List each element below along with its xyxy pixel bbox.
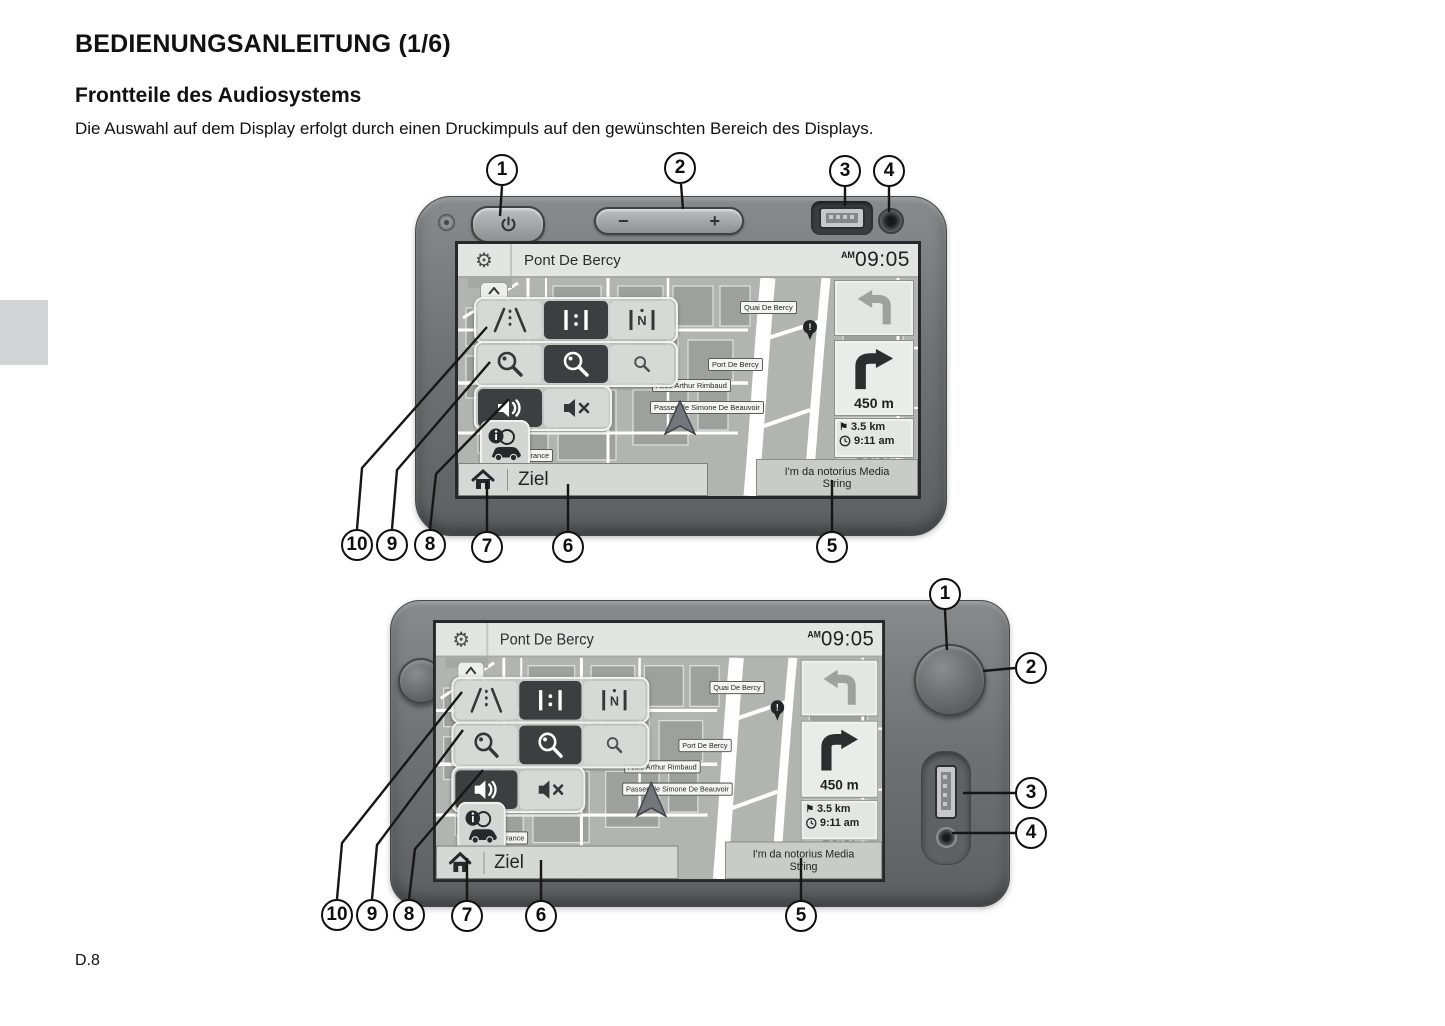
d1-callout-8: 8: [414, 529, 446, 561]
remaining-distance-row: ⚑ 3.5 km: [835, 419, 913, 435]
destination-button[interactable]: Ziel: [518, 469, 549, 491]
usb-port: [811, 201, 873, 235]
mute-button[interactable]: [544, 389, 608, 427]
settings-button[interactable]: ⚙: [436, 623, 488, 656]
curved-arrow-icon: [852, 288, 896, 328]
flag-icon: ⚑: [839, 422, 848, 433]
d2-callout-9: 9: [356, 899, 388, 931]
trip-info-box[interactable]: ⚑ 3.5 km 9:11 am: [834, 418, 914, 458]
remaining-distance-row: ⚑ 3.5 km: [802, 801, 878, 817]
north-letter: N: [610, 693, 619, 708]
current-street: Pont De Bercy: [512, 252, 841, 269]
turn-distance: 450 m: [835, 395, 913, 411]
view-2d-button[interactable]: [544, 301, 608, 339]
view-3d-button[interactable]: [455, 681, 517, 720]
flat-map-icon: [557, 307, 595, 333]
d1-callout-6: 6: [552, 531, 584, 563]
volume-rocker[interactable]: − +: [594, 207, 744, 235]
view-3d-button[interactable]: [478, 301, 542, 339]
destination-button[interactable]: Ziel: [494, 851, 524, 873]
gear-icon: ⚙: [475, 248, 493, 273]
power-icon: [500, 216, 517, 233]
street-label: Port De Bercy: [708, 358, 763, 371]
right-knob[interactable]: [914, 644, 986, 716]
north-up-button[interactable]: N: [583, 681, 645, 720]
north-up-button[interactable]: N: [610, 301, 674, 339]
d2-callout-3: 3: [1015, 777, 1047, 809]
clock-icon: [839, 435, 851, 447]
turn-distance: 450 m: [802, 776, 878, 792]
flag-icon: ⚑: [805, 803, 814, 814]
view-2d-button[interactable]: [519, 681, 581, 720]
mute-button[interactable]: [519, 770, 581, 809]
section-title: Frontteile des Audiosystems: [75, 84, 361, 108]
street-label: Port De Bercy: [678, 739, 731, 752]
device1-bezel: − +: [415, 196, 947, 536]
screen-header: ⚙ Pont De Bercy AM 09:05: [436, 623, 882, 658]
next-maneuver-box[interactable]: [834, 280, 914, 336]
alert-pin-icon[interactable]: !: [803, 320, 817, 334]
device2-screen-slot: ⚙ Pont De Bercy AM 09:05: [433, 620, 885, 882]
magnifier-icon: [536, 730, 565, 760]
collapse-tools-button[interactable]: [457, 662, 484, 678]
position-arrow-icon: [634, 782, 669, 819]
destination-bar[interactable]: Ziel: [436, 846, 679, 880]
muted-speaker-icon: [536, 777, 565, 801]
clock-icon: [805, 817, 817, 829]
d2-callout-4: 4: [1015, 817, 1047, 849]
turn-box[interactable]: 450 m: [801, 721, 879, 798]
settings-button[interactable]: ⚙: [458, 244, 512, 276]
d2-callout-2: 2: [1015, 652, 1047, 684]
d2-callout-8: 8: [393, 899, 425, 931]
street-label: Quai De Bercy: [709, 681, 764, 694]
flat-map-icon: [532, 687, 569, 713]
usb-icon: [818, 205, 866, 231]
north-letter: N: [637, 313, 646, 328]
d1-callout-7: 7: [471, 531, 503, 563]
nav-screen: ⚙ Pont De Bercy AM 09:05: [455, 241, 921, 499]
traffic-car-icon: [485, 425, 525, 465]
d1-callout-2: 2: [664, 152, 696, 184]
home-icon: [449, 851, 472, 873]
view-mode-toolbar: N: [451, 677, 649, 724]
d2-callout-7: 7: [451, 900, 483, 932]
clock: AM 09:05: [807, 627, 882, 651]
media-line2: String: [790, 860, 818, 872]
home-icon: [471, 469, 495, 491]
media-line1: I'm da notorius Media: [785, 466, 890, 478]
device1-screen-slot: ⚙ Pont De Bercy AM 09:05: [455, 241, 921, 499]
gear-icon: ⚙: [452, 627, 469, 652]
small-magnifier-icon: [633, 355, 652, 374]
media-info-bar[interactable]: I'm da notorius Media String: [756, 459, 918, 496]
chevron-up-icon: [488, 287, 500, 295]
media-line1: I'm da notorius Media: [753, 848, 855, 860]
alert-glyph: !: [809, 322, 812, 332]
page-side-tab: [0, 300, 48, 365]
manual-page: BEDIENUNGSANLEITUNG (1/6) Frontteile des…: [0, 0, 1445, 1026]
speaker-icon: [472, 777, 501, 801]
turn-right-icon: [815, 728, 864, 773]
curved-arrow-icon: [818, 668, 861, 709]
remaining-distance: 3.5 km: [817, 803, 850, 815]
page-title: BEDIENUNGSANLEITUNG (1/6): [75, 30, 451, 59]
perspective-road-icon: [468, 687, 505, 713]
d1-callout-1: 1: [486, 154, 518, 186]
usb-icon: [933, 764, 959, 820]
d1-callout-5: 5: [816, 531, 848, 563]
nav-screen: ⚙ Pont De Bercy AM 09:05: [433, 620, 885, 882]
perspective-road-icon: [491, 307, 529, 333]
current-street: Pont De Bercy: [488, 631, 807, 648]
trip-info-box[interactable]: ⚑ 3.5 km 9:11 am: [801, 800, 879, 841]
remaining-distance: 3.5 km: [851, 421, 885, 433]
clock: AM 09:05: [841, 248, 918, 272]
meridiem: AM: [841, 250, 855, 260]
body-text: Die Auswahl auf dem Display erfolgt durc…: [75, 118, 875, 141]
d2-callout-5: 5: [785, 900, 817, 932]
eta-value: 9:11 am: [854, 435, 894, 447]
bar-divider: [507, 469, 508, 491]
collapse-tools-button[interactable]: [480, 282, 508, 298]
zoom-out-button[interactable]: [478, 345, 542, 383]
position-arrow-icon: [662, 400, 698, 436]
eta-value: 9:11 am: [820, 817, 859, 829]
zoom-toolbar: [474, 341, 678, 387]
turn-right-icon: [849, 347, 899, 391]
d1-callout-9: 9: [376, 529, 408, 561]
view-mode-toolbar: N: [474, 297, 678, 343]
street-label: Quai De Bercy: [740, 301, 797, 314]
magnifier-icon: [561, 349, 591, 379]
speaker-icon: [495, 396, 525, 420]
device2-bezel: ⚙ Pont De Bercy AM 09:05: [390, 600, 1010, 907]
d1-callout-10: 10: [341, 529, 373, 561]
magnifier-dot-icon: [495, 349, 525, 379]
turn-box[interactable]: 450 m: [834, 340, 914, 416]
aux-jack: [936, 827, 957, 848]
zoom-in-button[interactable]: [544, 345, 608, 383]
d1-callout-3: 3: [829, 155, 861, 187]
destination-bar[interactable]: Ziel: [458, 463, 708, 496]
eta-row: 9:11 am: [835, 435, 913, 449]
zoom-out-button[interactable]: [455, 726, 517, 765]
aux-jack: [878, 208, 904, 234]
muted-speaker-icon: [561, 396, 591, 420]
chevron-up-icon: [465, 666, 477, 674]
time-value: 09:05: [821, 627, 874, 651]
d2-callout-6: 6: [525, 900, 557, 932]
alert-glyph: !: [776, 702, 779, 712]
home-button[interactable]: [437, 851, 472, 873]
power-button[interactable]: [471, 206, 545, 243]
media-info-bar[interactable]: I'm da notorius Media String: [725, 841, 882, 879]
small-magnifier-icon: [605, 736, 623, 755]
volume-plus[interactable]: +: [709, 211, 720, 232]
d2-callout-1: 1: [929, 578, 961, 610]
connector-panel: [921, 751, 971, 865]
zoom-auto-button[interactable]: [583, 726, 645, 765]
screen-header: ⚙ Pont De Bercy AM 09:05: [458, 244, 918, 278]
eta-row: 9:11 am: [802, 817, 878, 831]
home-button[interactable]: [459, 469, 495, 491]
time-value: 09:05: [855, 248, 910, 272]
d1-callout-4: 4: [873, 155, 905, 187]
meridiem: AM: [807, 629, 821, 639]
bar-divider: [483, 851, 484, 873]
magnifier-dot-icon: [472, 730, 501, 760]
next-maneuver-box[interactable]: [801, 660, 879, 717]
volume-minus[interactable]: −: [618, 211, 629, 232]
alert-pin-icon[interactable]: !: [771, 700, 785, 714]
page-number: D.8: [75, 952, 100, 970]
zoom-auto-button[interactable]: [610, 345, 674, 383]
zoom-toolbar: [451, 722, 649, 769]
screw-icon: [438, 214, 455, 231]
media-line2: String: [823, 478, 852, 490]
zoom-in-button[interactable]: [519, 726, 581, 765]
traffic-car-icon: [462, 807, 501, 848]
d2-callout-10: 10: [321, 899, 353, 931]
